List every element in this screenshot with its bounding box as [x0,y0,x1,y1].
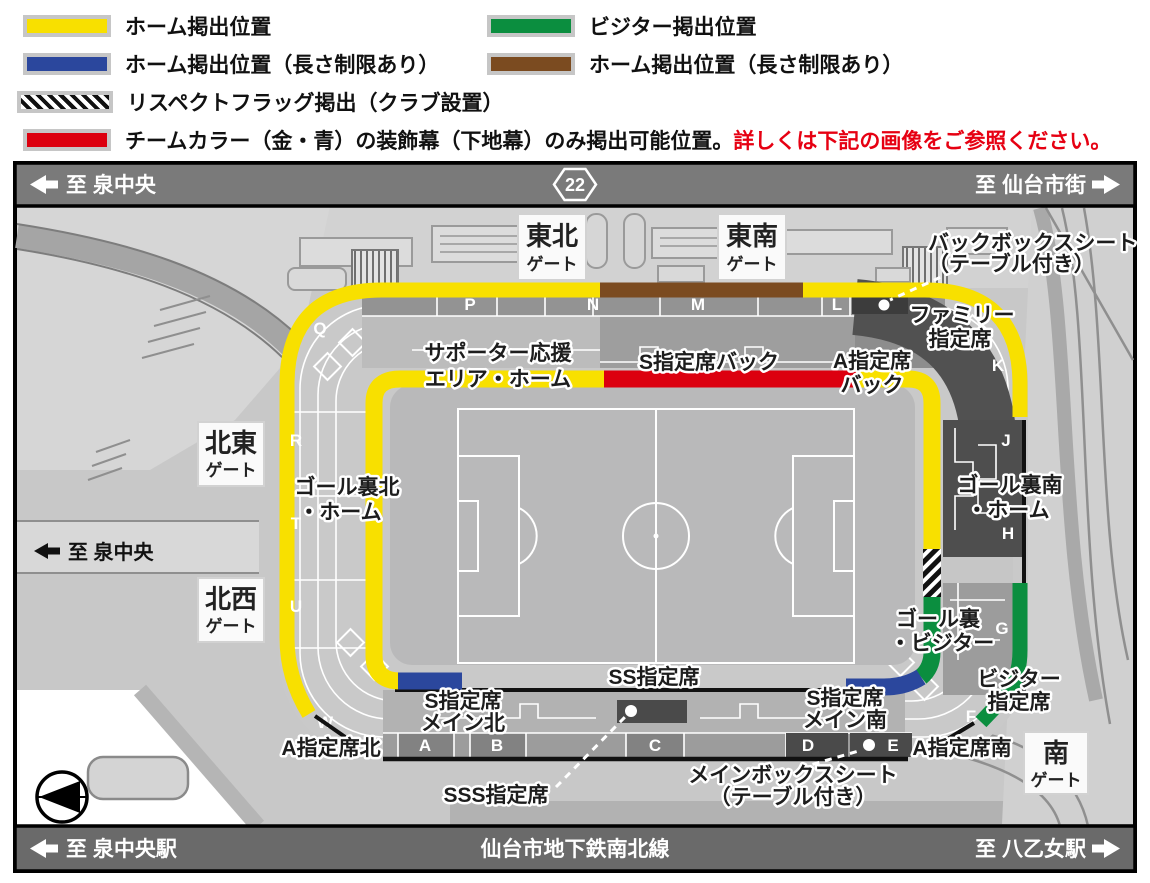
section-letter-p: P [464,295,475,314]
label-family-1: ファミリー [910,304,1015,327]
legend-row-visitor: ビジター掲出位置 [487,13,757,39]
label-a-south: A指定席南 [912,736,1011,760]
gate-hokuto-suffix: ゲート [206,460,257,480]
road-bar-top: 至 泉中央 22 至 仙台市街 [15,163,1135,206]
gate-tonan: 東南 ゲート [718,214,786,280]
label-backbox-1: バックボックスシート [928,232,1137,255]
road-bar-bottom: 至 泉中央駅 仙台市地下鉄南北線 至 八乙女駅 [15,826,1135,871]
section-letter-k: K [992,356,1005,375]
pitch [390,385,915,665]
home-brown-swatch [487,53,575,75]
gate-hokuto-name: 北東 [205,428,257,458]
legend-team-color-text: チームカラー（金・青）の装飾幕（下地幕）のみ掲出可能位置。 [125,130,733,153]
label-visitor-2: 指定席 [988,690,1051,714]
label-backbox-2: （テーブル付き） [928,252,1095,276]
bottom-bar-right-label: 至 八乙女駅 [975,837,1087,861]
label-a-back-1: A指定席 [833,349,911,373]
label-goal-north-1: ゴール裏北 [295,475,400,499]
label-goal-north-2: ・ホーム [298,501,381,524]
label-s-main-south-1: S指定席 [806,686,883,710]
section-letter-l: L [832,295,842,314]
label-visitor-1: ビジター [977,668,1061,691]
legend-team-color-note: 詳しくは下記の画像をご参照ください。 [733,130,1111,153]
section-letter-m: M [691,295,705,314]
respect-flag-hatch-swatch [17,91,113,113]
legend-home-limited-brown-label: ホーム掲出位置（長さ制限あり） [589,49,903,79]
legend-home-label: ホーム掲出位置 [125,11,271,41]
top-bar-right-label: 至 仙台市街 [975,173,1086,197]
gate-tohoku-name: 東北 [526,221,578,251]
inner-band-respect-flag-hatch [923,549,941,597]
label-goal-visitor-2: ・ビジター [890,632,995,655]
section-letter-g: G [995,619,1008,638]
gate-tohoku-suffix: ゲート [527,254,578,274]
legend-respect-flag-label: リスペクトフラッグ掲出（クラブ設置） [127,87,504,117]
back-box-seat-dot [879,300,890,311]
main-box-seat-dot [863,739,875,751]
bottom-bar-center-label: 仙台市地下鉄南北線 [481,837,670,861]
section-letter-u: U [290,597,302,616]
section-letter-e: E [887,736,898,755]
legend-row-team-color: チームカラー（金・青）の装飾幕（下地幕）のみ掲出可能位置。詳しくは下記の画像をご… [23,127,1111,153]
gate-hokusei: 北西 ゲート [198,578,264,642]
label-mainbox-1: メインボックスシート [688,764,897,787]
bottom-bar-left-label: 至 泉中央駅 [66,837,178,861]
gate-minami-name: 南 [1043,738,1069,768]
compass-icon [37,772,87,822]
label-mainbox-2: （テーブル付き） [710,785,877,809]
label-a-north: A指定席北 [281,736,380,760]
legend-row-home-limited-brown: ホーム掲出位置（長さ制限あり） [487,51,903,77]
gate-minami: 南 ゲート [1024,732,1088,794]
visitor-green-swatch [487,15,575,37]
gate-tonan-name: 東南 [726,221,778,251]
legend-row-respect-flag: リスペクトフラッグ掲出（クラブ設置） [17,89,504,115]
section-letter-b: B [491,736,503,755]
legend-row-home-limited-blue: ホーム掲出位置（長さ制限あり） [23,51,439,77]
stadium-flag-map-page: Q P N M L K J H G F W U T R A B C D E 東北… [0,0,1150,883]
top-bar-left-label: 至 泉中央 [66,173,157,197]
section-letter-r: R [290,431,302,450]
legend-row-home: ホーム掲出位置 [23,13,271,39]
section-letter-n: N [587,295,599,314]
label-s-main-south-2: メイン南 [803,708,887,732]
label-supporter-area-1: サポーター応援 [425,341,573,365]
sss-seat-dot [625,705,637,717]
legend-team-color-label: チームカラー（金・青）の装飾幕（下地幕）のみ掲出可能位置。詳しくは下記の画像をご… [125,125,1111,155]
gate-minami-suffix: ゲート [1031,770,1082,790]
home-yellow-swatch [23,15,111,37]
section-letter-j: J [1001,431,1010,450]
label-supporter-area-2: エリア・ホーム [425,368,571,391]
inner-band-home-blue-right [846,677,921,687]
section-letter-c: C [649,736,661,755]
route-number: 22 [565,175,585,195]
stand-east [943,420,1024,700]
section-letter-q: Q [313,319,326,338]
gate-tonan-suffix: ゲート [727,254,778,274]
label-a-back-2: バック [841,374,904,397]
section-letter-a: A [419,736,431,755]
label-s-main-north-2: メイン北 [421,712,505,735]
gate-hokusei-suffix: ゲート [206,616,257,636]
label-family-2: 指定席 [929,327,992,351]
gate-hokusei-name: 北西 [205,584,257,614]
section-letter-d: D [802,736,814,755]
label-goal-south-2: ・ホーム [966,499,1049,522]
section-letter-h: H [1002,524,1014,543]
gate-hokuto: 北東 ゲート [198,422,264,486]
label-goal-visitor-1: ゴール裏 [896,607,981,631]
label-s-back: S指定席バック [639,350,779,374]
gate-tohoku: 東北 ゲート [518,214,586,280]
home-blue-swatch [23,53,111,75]
label-goal-south-1: ゴール裏南 [958,473,1063,497]
label-ss: SS指定席 [608,665,699,689]
label-s-main-north-1: S指定席 [424,689,501,713]
legend-visitor-label: ビジター掲出位置 [589,11,757,41]
team-red-swatch [23,129,111,151]
label-sss: SSS指定席 [443,783,548,807]
map-left-road-label: 至 泉中央 [68,540,155,564]
legend-home-limited-blue-label: ホーム掲出位置（長さ制限あり） [125,49,439,79]
